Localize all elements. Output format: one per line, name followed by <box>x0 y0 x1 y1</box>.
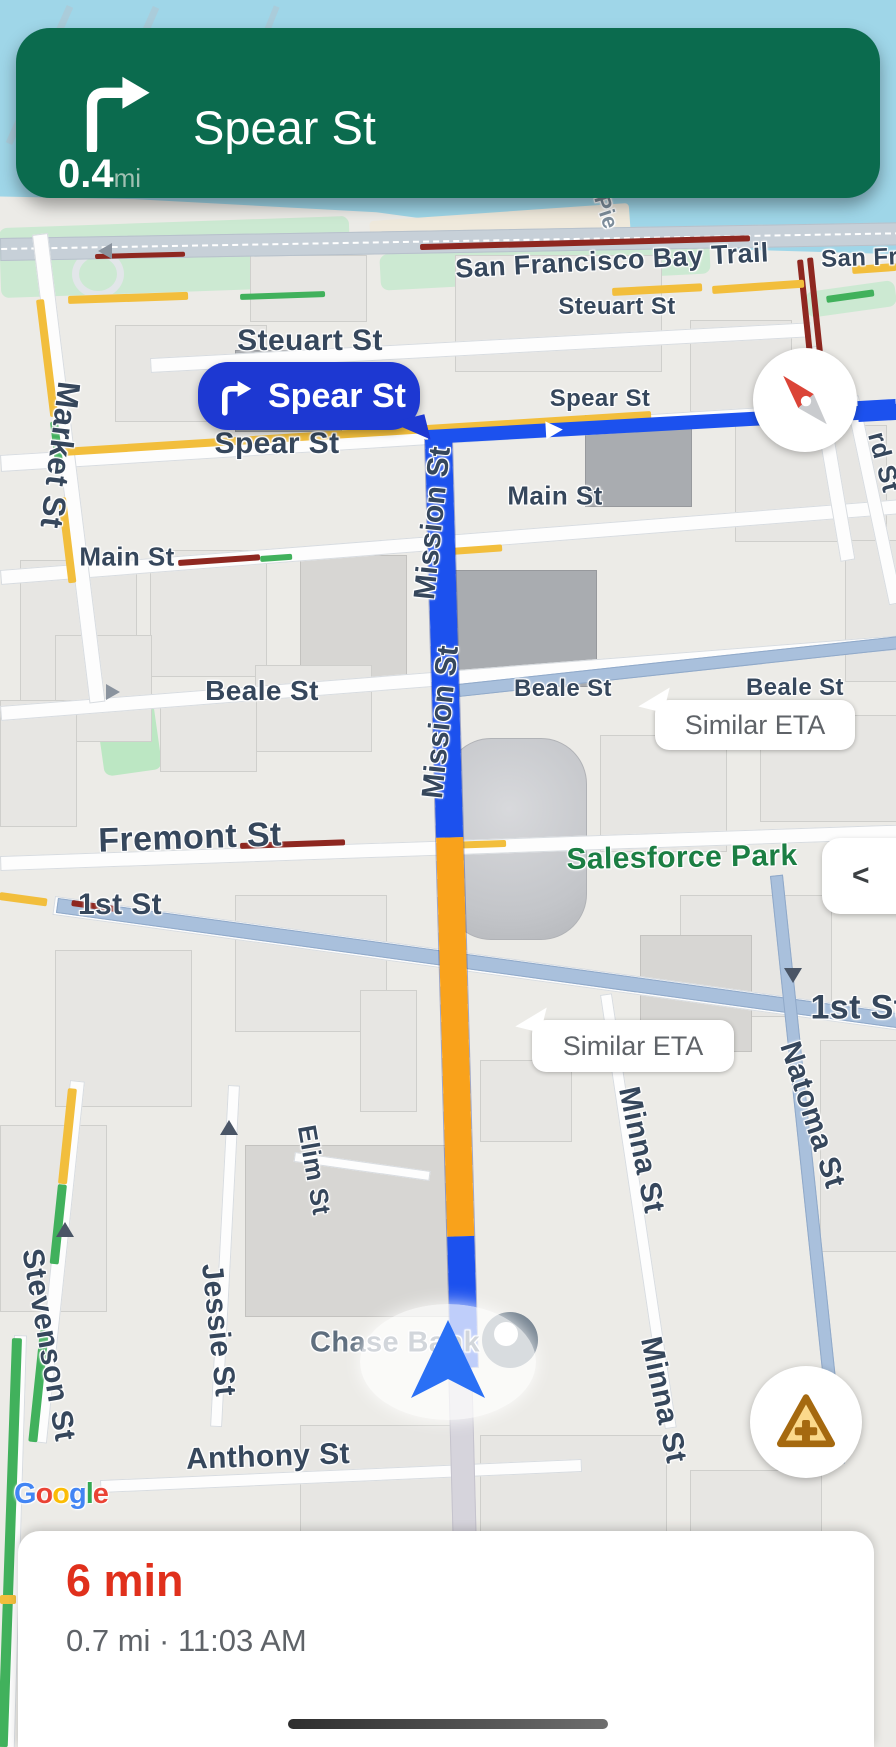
distance-to-turn: 0.4mi <box>58 152 141 197</box>
street-label: 1st St <box>811 989 896 1028</box>
next-turn-callout[interactable]: Spear St <box>198 362 420 430</box>
compass-needle-icon <box>768 363 842 437</box>
chevron-left-icon: < <box>852 859 870 893</box>
traffic-segment <box>0 1595 16 1604</box>
google-logo-letter: e <box>93 1478 108 1510</box>
traffic-segment <box>0 892 48 906</box>
trip-summary-sheet[interactable]: 6 min 0.7 mi · 11:03 AM <box>18 1531 874 1747</box>
callout-tail <box>515 1001 547 1033</box>
turn-callout-street: Spear St <box>268 377 406 416</box>
google-logo-letter: o <box>36 1478 53 1510</box>
callout-tail <box>638 681 670 713</box>
route-polyline-spear-st-edge <box>857 399 896 422</box>
street-label: Salesforce Park <box>566 839 798 877</box>
report-hazard-button[interactable] <box>750 1366 862 1478</box>
navigation-arrow-icon <box>411 1320 485 1398</box>
turn-right-icon <box>74 72 158 152</box>
street-label: Spear St <box>550 385 651 413</box>
navigation-instruction-banner[interactable]: 0.4mi Spear St <box>16 28 880 198</box>
home-indicator[interactable] <box>288 1719 608 1729</box>
location-puck-halo <box>360 1304 536 1420</box>
trip-details: 0.7 mi · 11:03 AM <box>66 1623 307 1659</box>
one-way-arrow-icon <box>56 1222 74 1237</box>
street-label: Main St <box>79 542 174 573</box>
street-label: Steuart St <box>558 293 675 321</box>
traffic-segment <box>712 280 804 294</box>
street-label: Jessie St <box>194 1262 242 1399</box>
one-way-arrow-icon <box>98 243 112 259</box>
google-logo-letter: g <box>69 1478 86 1510</box>
building-block <box>360 990 417 1112</box>
street-label: Spear St <box>215 427 340 461</box>
hazard-warning-icon <box>773 1391 839 1453</box>
route-overview-button[interactable]: < <box>822 838 896 914</box>
street-label: Steuart St <box>237 324 383 358</box>
building-block <box>480 1060 572 1142</box>
one-way-arrow-icon <box>106 684 120 700</box>
similar-eta-label: Similar ETA <box>685 710 826 741</box>
google-logo-letter: G <box>14 1478 36 1510</box>
street-label: Anthony St <box>185 1437 350 1477</box>
street-label: Minna St <box>611 1084 671 1216</box>
map-canvas[interactable]: San Francisco Bay TrailSan FranPieMarket… <box>0 0 896 1747</box>
turn-right-icon <box>216 376 256 416</box>
google-logo-letter: o <box>52 1478 69 1510</box>
street-label: Main St <box>507 481 602 512</box>
street-label: San Fran <box>821 242 896 274</box>
street-label: Beale St <box>514 675 612 703</box>
route-direction-arrow-icon <box>545 420 563 439</box>
google-logo-letter: l <box>86 1478 93 1510</box>
similar-eta-label: Similar ETA <box>563 1031 704 1062</box>
one-way-arrow-icon <box>784 968 802 983</box>
similar-eta-callout[interactable]: Similar ETA <box>655 700 855 750</box>
google-logo: Google <box>14 1478 108 1511</box>
distance-unit: mi <box>114 163 141 193</box>
compass-button[interactable] <box>753 348 857 452</box>
banner-street-name: Spear St <box>193 100 376 155</box>
street-label: Beale St <box>746 674 844 702</box>
one-way-arrow-icon <box>220 1120 238 1135</box>
street-label: Beale St <box>205 675 319 707</box>
street-label: 1st St <box>78 888 162 922</box>
building-block <box>250 255 367 322</box>
navigation-screen: San Francisco Bay TrailSan FranPieMarket… <box>0 0 896 1747</box>
street-label: Fremont St <box>98 815 283 860</box>
similar-eta-callout[interactable]: Similar ETA <box>532 1020 734 1072</box>
eta-time: 6 min <box>66 1555 184 1607</box>
building-block <box>300 555 407 682</box>
